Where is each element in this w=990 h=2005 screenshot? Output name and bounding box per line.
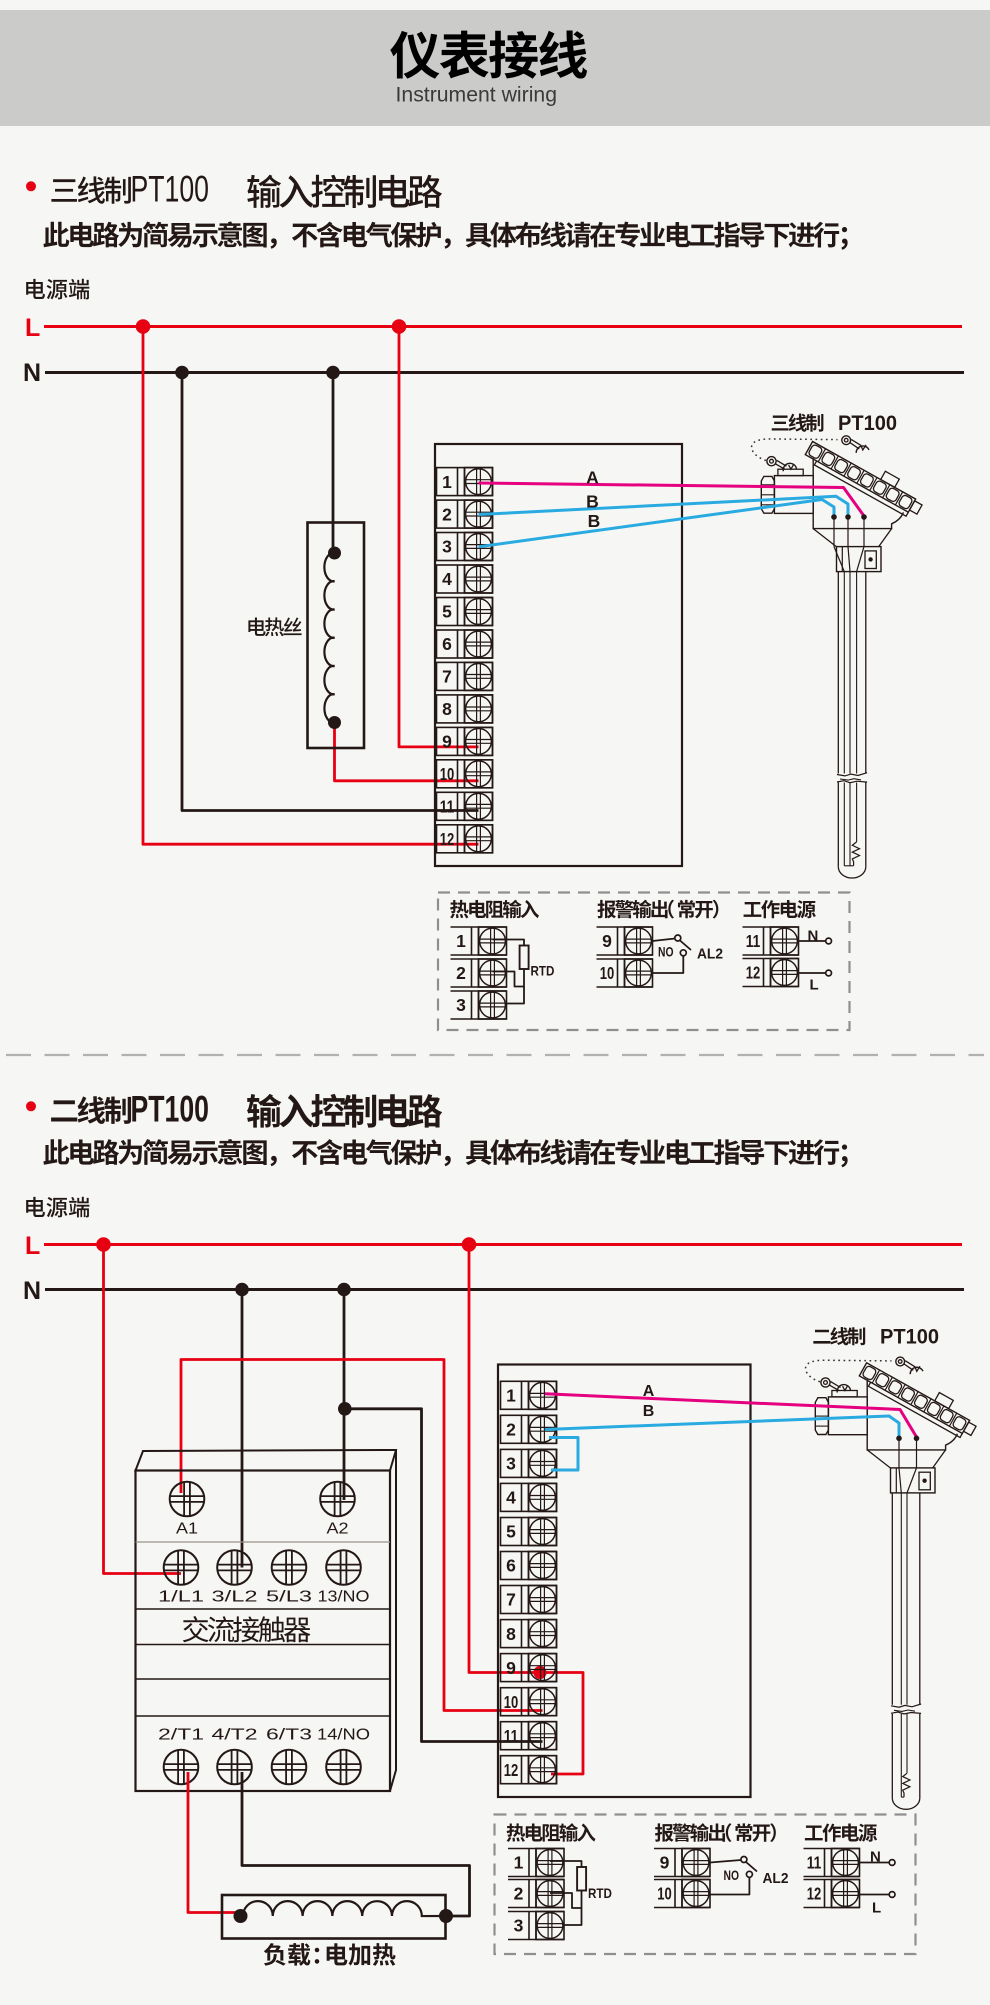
svg-text:10: 10 [504,1692,519,1712]
svg-text:3: 3 [506,1454,516,1474]
svg-text:9: 9 [602,931,612,951]
svg-text:B: B [643,1403,655,1420]
svg-text:PT100: PT100 [131,1088,210,1129]
svg-text:N: N [23,1277,41,1305]
svg-text:14/NO: 14/NO [317,1727,370,1744]
svg-text:L: L [810,977,819,994]
svg-text:12: 12 [746,963,761,983]
svg-text:2: 2 [514,1884,524,1904]
svg-text:3/L2: 3/L2 [212,1589,258,1606]
svg-text:7: 7 [506,1590,516,1610]
svg-text:B: B [588,511,601,531]
svg-text:PT100: PT100 [838,412,897,435]
svg-text:5: 5 [506,1522,516,1542]
svg-text:3: 3 [456,995,466,1015]
svg-text:1/L1: 1/L1 [158,1589,204,1606]
svg-text:12: 12 [807,1884,822,1904]
svg-text:A: A [643,1383,655,1400]
svg-text:10: 10 [440,764,455,784]
svg-text:RTD: RTD [531,963,555,979]
svg-text:PT100: PT100 [880,1326,939,1349]
svg-text:AL2: AL2 [763,1871,789,1887]
svg-text:5/L3: 5/L3 [266,1589,312,1606]
svg-text:Instrument wiring: Instrument wiring [396,83,558,107]
svg-text:1: 1 [506,1386,516,1406]
svg-text:11: 11 [504,1726,519,1746]
svg-text:7: 7 [442,667,452,687]
svg-text:3: 3 [514,1916,524,1936]
svg-text:5: 5 [442,602,452,622]
svg-text:L: L [25,1232,40,1260]
svg-text:2: 2 [442,504,452,524]
svg-text:NO: NO [658,944,674,960]
svg-text:AL2: AL2 [697,947,723,963]
svg-text:6/T3: 6/T3 [266,1727,312,1744]
svg-text:11: 11 [746,931,761,951]
svg-text:N: N [870,1849,881,1866]
svg-text:A: A [586,468,599,488]
svg-text:13/NO: 13/NO [318,1589,370,1606]
svg-text:1: 1 [456,931,466,951]
svg-text:A2: A2 [327,1521,349,1538]
svg-text:6: 6 [506,1556,516,1576]
svg-text:2: 2 [506,1420,516,1440]
svg-text:9: 9 [660,1853,670,1873]
svg-text:RTD: RTD [588,1885,612,1901]
svg-text:11: 11 [807,1853,822,1873]
svg-text:2: 2 [456,963,466,983]
svg-text:12: 12 [504,1760,519,1780]
svg-text:10: 10 [600,963,615,983]
svg-text:8: 8 [506,1624,516,1644]
svg-text:1: 1 [514,1853,524,1873]
svg-text:B: B [586,492,599,512]
svg-text:L: L [872,1900,881,1917]
svg-text:2/T1: 2/T1 [158,1727,204,1744]
svg-text:12: 12 [440,829,455,849]
svg-text:4: 4 [442,569,452,589]
svg-text:9: 9 [442,732,452,752]
svg-text:3: 3 [442,537,452,557]
svg-text:N: N [808,928,819,945]
svg-text:4/T2: 4/T2 [212,1727,258,1744]
svg-text:1: 1 [442,472,452,492]
svg-text:L: L [25,314,40,342]
svg-text:6: 6 [442,634,452,654]
svg-text:11: 11 [440,797,455,817]
svg-text:PT100: PT100 [131,168,210,209]
svg-text:NO: NO [724,1867,740,1883]
svg-text:8: 8 [442,699,452,719]
svg-text:A1: A1 [176,1521,198,1538]
svg-text:4: 4 [506,1488,516,1508]
svg-text:N: N [23,359,41,387]
svg-text:10: 10 [657,1884,672,1904]
svg-text:9: 9 [506,1658,516,1678]
